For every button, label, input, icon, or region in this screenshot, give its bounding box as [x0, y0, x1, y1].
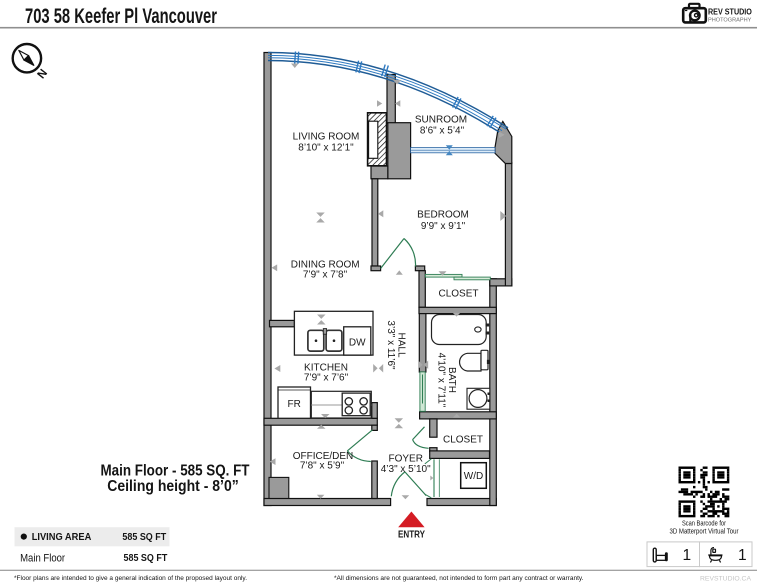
svg-text:8’6" x 5’4": 8’6" x 5’4" [420, 126, 465, 137]
svg-text:1: 1 [682, 547, 691, 564]
svg-text:BEDROOM: BEDROOM [417, 209, 469, 220]
svg-text:Ceiling height - 8’0”: Ceiling height - 8’0” [107, 478, 239, 495]
svg-text:Main Floor - 585 SQ. FT: Main Floor - 585 SQ. FT [101, 463, 250, 480]
svg-text:REVSTUDIO.CA: REVSTUDIO.CA [700, 575, 752, 582]
svg-text:BATH: BATH [446, 367, 457, 393]
svg-text:703 58 Keefer Pl Vancouver: 703 58 Keefer Pl Vancouver [25, 4, 217, 28]
svg-text:3’3" x 11’6": 3’3" x 11’6" [385, 320, 396, 370]
svg-text:*All dimensions are not guaran: *All dimensions are not guaranteed, not … [334, 575, 584, 582]
svg-text:PHOTOGRAPHY: PHOTOGRAPHY [708, 17, 752, 23]
svg-text:8’10" x 12’1": 8’10" x 12’1" [298, 143, 354, 154]
svg-text:Main Floor: Main Floor [20, 552, 65, 564]
svg-text:W/D: W/D [464, 471, 483, 482]
svg-text:Scan Barcode for: Scan Barcode for [682, 521, 727, 528]
svg-text:7’9" x 7’6": 7’9" x 7’6" [304, 373, 349, 384]
svg-text:1: 1 [738, 547, 747, 564]
svg-text:7’8" x 5’9": 7’8" x 5’9" [300, 461, 345, 472]
svg-text:HALL: HALL [396, 332, 407, 357]
svg-text:*Floor plans are intended to g: *Floor plans are intended to give a gene… [14, 575, 247, 582]
svg-text:LIVING AREA: LIVING AREA [32, 532, 92, 543]
svg-text:DW: DW [349, 337, 366, 348]
svg-text:585 SQ FT: 585 SQ FT [122, 532, 166, 543]
svg-text:ENTRY: ENTRY [398, 530, 425, 541]
svg-text:FR: FR [288, 399, 301, 410]
svg-text:REV STUDIO: REV STUDIO [708, 7, 752, 17]
svg-text:FOYER: FOYER [388, 453, 422, 464]
svg-text:CLOSET: CLOSET [438, 289, 478, 300]
svg-text:7’9" x 7’8": 7’9" x 7’8" [303, 270, 348, 281]
svg-text:4’3" x 5’10": 4’3" x 5’10" [381, 464, 431, 475]
svg-text:CLOSET: CLOSET [443, 434, 483, 445]
svg-text:4’10" x 7’11": 4’10" x 7’11" [436, 353, 447, 408]
svg-text:9’9" x 9’1": 9’9" x 9’1" [421, 221, 466, 232]
svg-text:585 SQ FT: 585 SQ FT [124, 553, 168, 564]
svg-text:3D Matterport Virtual Tour: 3D Matterport Virtual Tour [670, 528, 740, 535]
svg-text:LIVING ROOM: LIVING ROOM [293, 132, 360, 143]
svg-text:SUNROOM: SUNROOM [415, 115, 467, 126]
